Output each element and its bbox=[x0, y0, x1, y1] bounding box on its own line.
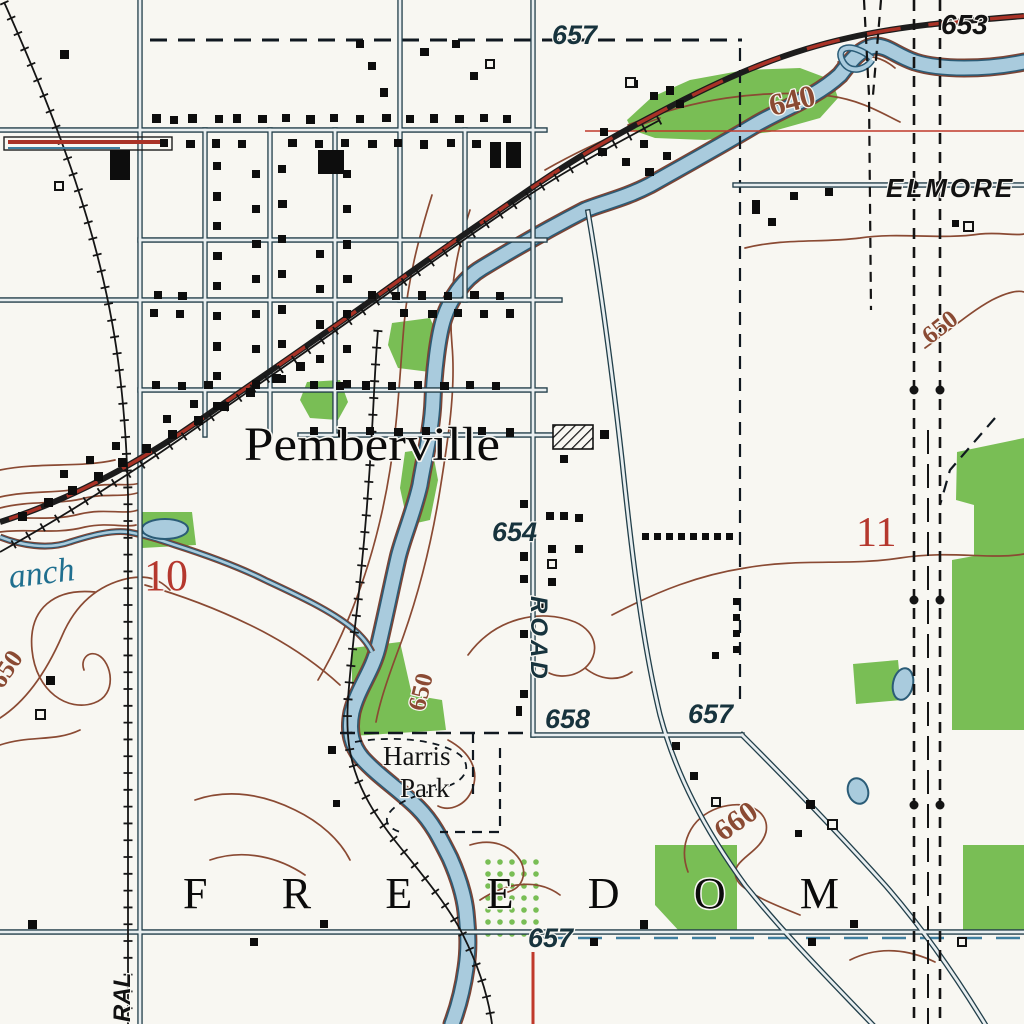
building bbox=[806, 800, 815, 809]
building bbox=[650, 92, 658, 100]
building bbox=[600, 128, 608, 136]
building bbox=[626, 78, 635, 87]
building bbox=[252, 380, 260, 389]
building bbox=[343, 170, 351, 178]
section-number: 10 bbox=[144, 551, 188, 600]
building bbox=[60, 50, 69, 59]
building bbox=[213, 192, 221, 201]
orchard-dot bbox=[509, 859, 515, 865]
building bbox=[640, 140, 648, 148]
town-label: Pemberville bbox=[244, 418, 500, 471]
transmission-pole-dot bbox=[936, 386, 945, 395]
building bbox=[213, 162, 221, 170]
building bbox=[600, 430, 609, 439]
building bbox=[215, 115, 223, 123]
building bbox=[712, 798, 720, 806]
woods-bottom-right bbox=[963, 845, 1024, 932]
building bbox=[110, 150, 130, 180]
building bbox=[272, 374, 281, 383]
building bbox=[752, 200, 760, 214]
building bbox=[60, 470, 68, 478]
building bbox=[958, 938, 966, 946]
building bbox=[726, 533, 733, 540]
building bbox=[452, 40, 460, 48]
building bbox=[663, 152, 671, 160]
building bbox=[278, 305, 286, 314]
orchard-dot bbox=[497, 859, 503, 865]
building bbox=[163, 415, 171, 423]
orchard-dot bbox=[521, 907, 527, 913]
building bbox=[520, 552, 528, 561]
transmission-pole-dot bbox=[910, 386, 919, 395]
building bbox=[343, 205, 351, 213]
building bbox=[702, 533, 709, 540]
building bbox=[676, 100, 684, 108]
building bbox=[503, 115, 511, 123]
orchard-dot bbox=[533, 895, 539, 901]
building bbox=[640, 920, 648, 929]
building bbox=[150, 309, 158, 317]
orchard-dot bbox=[521, 895, 527, 901]
building bbox=[486, 60, 494, 68]
building bbox=[152, 381, 160, 389]
street-fragment-label: RAL bbox=[109, 973, 136, 1022]
building bbox=[252, 275, 260, 283]
building bbox=[55, 182, 63, 190]
spot-elevation: 653 bbox=[941, 9, 988, 40]
building bbox=[466, 381, 474, 389]
building bbox=[418, 291, 426, 300]
transmission-pole-dot bbox=[936, 596, 945, 605]
building bbox=[258, 115, 267, 123]
building bbox=[548, 578, 556, 586]
building bbox=[516, 706, 522, 716]
building bbox=[316, 355, 324, 363]
spot-elevation: 654 bbox=[492, 517, 537, 547]
building bbox=[160, 139, 168, 147]
building bbox=[238, 140, 246, 148]
transmission-pole-dot bbox=[910, 801, 919, 810]
orchard-dot bbox=[485, 919, 491, 925]
topo-map: Pemberville FREEDOM Harris Park ELMORE a… bbox=[0, 0, 1024, 1024]
building bbox=[356, 115, 364, 123]
building bbox=[714, 533, 721, 540]
building bbox=[733, 630, 740, 637]
building bbox=[430, 114, 438, 123]
building bbox=[388, 382, 396, 390]
orchard-dot bbox=[533, 871, 539, 877]
building bbox=[622, 158, 630, 166]
orchard-dot bbox=[509, 919, 515, 925]
building bbox=[520, 575, 528, 583]
building bbox=[333, 800, 340, 807]
building bbox=[213, 312, 221, 320]
building bbox=[952, 220, 959, 227]
building bbox=[343, 310, 351, 318]
building bbox=[470, 291, 479, 299]
building bbox=[282, 114, 290, 122]
building bbox=[288, 139, 297, 147]
building bbox=[520, 500, 528, 508]
building bbox=[343, 240, 351, 249]
building bbox=[278, 235, 286, 243]
building bbox=[278, 270, 286, 278]
transmission-pole-dot bbox=[910, 596, 919, 605]
road-destination-label: ELMORE bbox=[886, 173, 1015, 203]
building bbox=[190, 400, 198, 408]
building bbox=[768, 218, 776, 226]
building bbox=[490, 142, 501, 168]
building bbox=[575, 545, 583, 553]
building bbox=[154, 291, 162, 299]
building bbox=[414, 381, 422, 389]
building bbox=[252, 205, 260, 213]
building bbox=[68, 486, 77, 495]
building bbox=[212, 139, 220, 148]
building bbox=[310, 381, 318, 389]
building bbox=[575, 514, 583, 522]
building bbox=[168, 430, 177, 439]
road-name-vertical: ROAD bbox=[525, 596, 552, 683]
building bbox=[328, 746, 336, 754]
building bbox=[368, 62, 376, 70]
building bbox=[46, 676, 55, 685]
spot-elevation: 657 bbox=[528, 923, 575, 953]
building bbox=[548, 545, 556, 553]
building bbox=[213, 222, 221, 230]
building bbox=[94, 472, 103, 481]
pond bbox=[142, 519, 188, 539]
park-label-line2: Park bbox=[400, 773, 450, 803]
building bbox=[420, 140, 428, 149]
building bbox=[712, 652, 719, 659]
building bbox=[598, 148, 607, 156]
woods-east bbox=[952, 438, 1024, 730]
building bbox=[520, 690, 528, 698]
building bbox=[406, 115, 414, 123]
building bbox=[506, 428, 514, 437]
building bbox=[690, 533, 697, 540]
building bbox=[112, 442, 120, 450]
building bbox=[18, 512, 27, 521]
building bbox=[306, 115, 315, 124]
building bbox=[252, 170, 260, 178]
building bbox=[492, 382, 500, 390]
building bbox=[343, 345, 351, 353]
building bbox=[330, 114, 338, 122]
building bbox=[733, 598, 740, 605]
building bbox=[278, 165, 286, 173]
building bbox=[188, 114, 197, 123]
building bbox=[795, 830, 802, 837]
building bbox=[808, 938, 816, 946]
building bbox=[455, 115, 464, 123]
orchard-dot bbox=[533, 859, 539, 865]
building bbox=[645, 168, 654, 176]
building bbox=[36, 710, 45, 719]
building bbox=[318, 150, 344, 174]
building bbox=[790, 192, 798, 200]
building bbox=[368, 291, 376, 299]
building bbox=[690, 772, 698, 780]
building bbox=[506, 309, 514, 318]
building bbox=[278, 340, 286, 348]
building bbox=[186, 140, 195, 148]
building bbox=[316, 250, 324, 258]
spot-elevation: 658 bbox=[545, 704, 590, 734]
building bbox=[252, 240, 261, 248]
building bbox=[392, 292, 400, 300]
building bbox=[252, 345, 260, 353]
building bbox=[560, 512, 568, 520]
building bbox=[28, 920, 37, 929]
building bbox=[964, 222, 973, 231]
building bbox=[470, 72, 478, 80]
building bbox=[548, 560, 556, 568]
building bbox=[296, 362, 305, 371]
building bbox=[86, 456, 94, 464]
building bbox=[642, 533, 649, 540]
building bbox=[170, 116, 178, 124]
building bbox=[316, 320, 324, 329]
building bbox=[341, 139, 349, 147]
building bbox=[440, 382, 449, 390]
building bbox=[678, 533, 685, 540]
building bbox=[560, 455, 568, 463]
building bbox=[252, 310, 260, 318]
building bbox=[233, 114, 241, 123]
orchard-dot bbox=[497, 919, 503, 925]
building bbox=[825, 188, 833, 196]
building bbox=[394, 139, 402, 147]
building bbox=[336, 382, 344, 390]
spot-elevation: 657 bbox=[552, 20, 599, 50]
building bbox=[590, 938, 598, 946]
building bbox=[220, 402, 229, 411]
park-label-line1: Harris bbox=[383, 741, 450, 771]
building bbox=[250, 938, 258, 946]
building bbox=[213, 372, 221, 380]
building bbox=[506, 142, 521, 168]
building bbox=[496, 292, 504, 300]
building bbox=[380, 88, 388, 97]
building bbox=[733, 614, 740, 621]
building bbox=[246, 388, 255, 397]
building bbox=[420, 48, 429, 56]
building bbox=[480, 310, 488, 318]
building bbox=[444, 292, 452, 300]
building bbox=[368, 140, 377, 148]
building bbox=[278, 200, 287, 208]
orchard-dot bbox=[533, 907, 539, 913]
building bbox=[666, 533, 673, 540]
transmission-pole-dot bbox=[936, 801, 945, 810]
building bbox=[152, 114, 161, 123]
building bbox=[176, 310, 184, 318]
building bbox=[118, 458, 127, 467]
building bbox=[733, 646, 740, 653]
building bbox=[382, 114, 391, 122]
building bbox=[44, 498, 53, 507]
orchard-dot bbox=[485, 859, 491, 865]
building bbox=[213, 282, 221, 290]
building bbox=[316, 285, 324, 293]
building bbox=[204, 381, 213, 389]
building bbox=[666, 86, 674, 95]
building bbox=[320, 920, 328, 928]
orchard-dot bbox=[521, 919, 527, 925]
building bbox=[472, 140, 481, 148]
building bbox=[343, 380, 351, 388]
building bbox=[213, 342, 221, 351]
building bbox=[454, 309, 462, 317]
hatched-building bbox=[553, 425, 593, 449]
building bbox=[850, 920, 858, 928]
building bbox=[343, 275, 352, 283]
building bbox=[356, 40, 364, 48]
building bbox=[672, 742, 680, 750]
building bbox=[447, 139, 455, 147]
building bbox=[828, 820, 837, 829]
building bbox=[362, 381, 370, 390]
building bbox=[546, 512, 554, 520]
building bbox=[178, 382, 186, 390]
building bbox=[654, 533, 661, 540]
building bbox=[142, 444, 151, 453]
building bbox=[194, 416, 203, 425]
section-number: 11 bbox=[856, 510, 896, 556]
building bbox=[480, 114, 488, 122]
building bbox=[178, 292, 187, 300]
building bbox=[213, 252, 222, 260]
spot-elevation: 657 bbox=[688, 699, 735, 729]
building bbox=[315, 140, 323, 148]
building bbox=[400, 309, 408, 317]
building bbox=[428, 310, 437, 318]
